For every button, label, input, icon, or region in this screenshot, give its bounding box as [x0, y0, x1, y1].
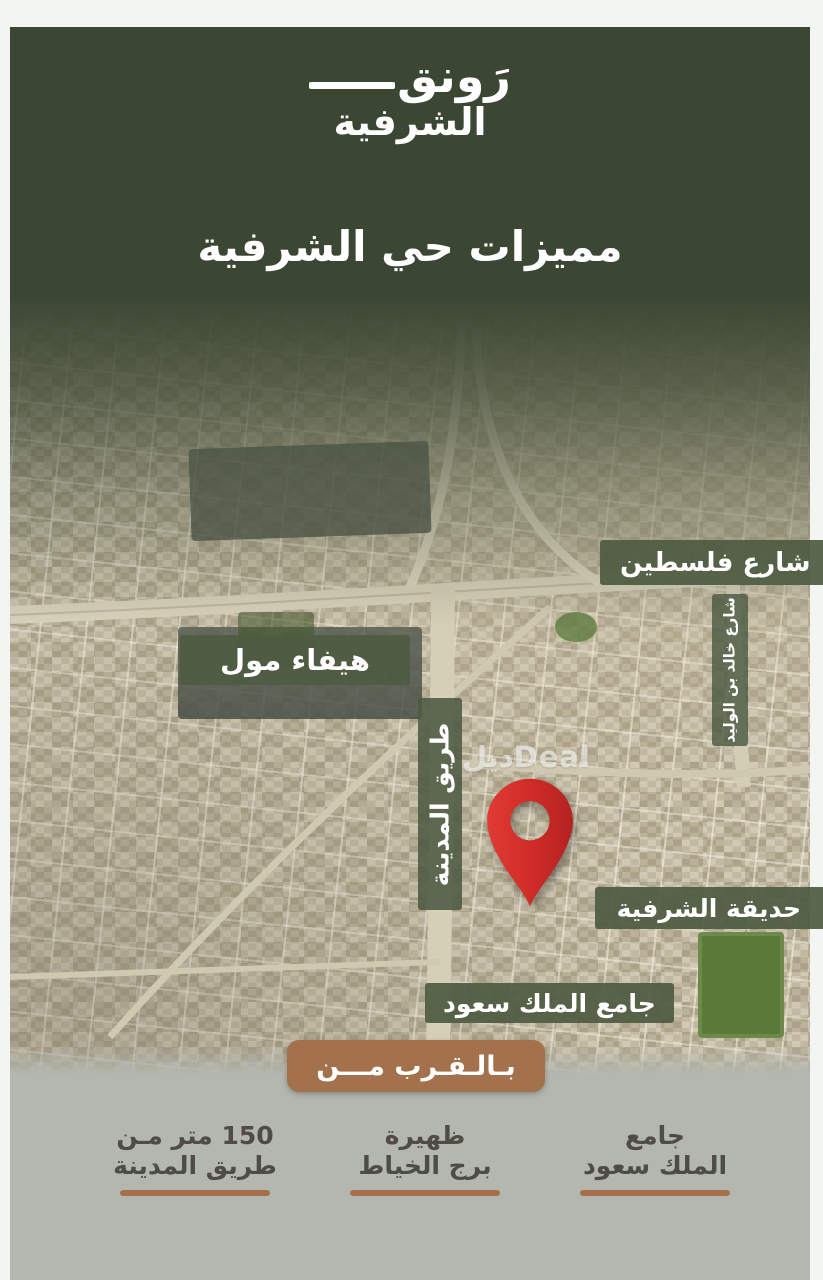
white-frame: رَونق الشرفية مميزات حي الشرفية شارع فلس…	[0, 0, 823, 1280]
brand-name-line1: رَونق	[397, 51, 511, 102]
khalid-street-text: شارع خالد بن الوليد	[721, 597, 739, 742]
nearby-item-line2: برج الخياط	[340, 1151, 510, 1181]
logo-kashida-bar	[309, 82, 395, 89]
madinah-road-text: طريق المدينة	[425, 722, 454, 886]
nearby-item-underline	[120, 1190, 270, 1196]
nearby-item-line2: الملك سعود	[570, 1151, 740, 1181]
poster: رَونق الشرفية مميزات حي الشرفية شارع فلس…	[10, 27, 810, 1280]
nearby-item-king-saud-mosque: جامع الملك سعود	[570, 1121, 740, 1196]
nearby-banner: بـالـقـرب مـــن	[287, 1040, 545, 1092]
page-title: مميزات حي الشرفية	[10, 222, 810, 271]
brand-name-line2: الشرفية	[10, 102, 810, 144]
map-label-alsharafiyah-park: حديقة الشرفية	[595, 887, 823, 929]
map-label-khalid-bin-alwalid-street: شارع خالد بن الوليد	[712, 594, 748, 746]
nearby-item-line2: طريق المدينة	[110, 1151, 280, 1181]
watermark: ديلDeal	[462, 740, 591, 774]
brand-logo: رَونق الشرفية	[10, 51, 810, 143]
nearby-item-line1: ظهيرة	[340, 1121, 510, 1151]
nearby-item-line1: جامع	[570, 1121, 740, 1151]
nearby-item-underline	[350, 1190, 500, 1196]
nearby-item-line1: 150 متر مـن	[110, 1121, 280, 1151]
map-label-palestine-street: شارع فلسطين	[600, 540, 823, 585]
map-label-king-saud-mosque: جامع الملك سعود	[425, 983, 674, 1023]
nearby-item-underline	[580, 1190, 730, 1196]
map-label-madinah-road: طريق المدينة	[418, 698, 462, 910]
location-pin-icon	[483, 776, 577, 914]
map-label-haifa-mall: هيفاء مول	[180, 635, 410, 685]
sports-field-patch	[698, 932, 784, 1038]
nearby-item-burj-alkhayyat: ظهيرة برج الخياط	[340, 1121, 510, 1196]
nearby-item-madinah-road: 150 متر مـن طريق المدينة	[110, 1121, 280, 1196]
